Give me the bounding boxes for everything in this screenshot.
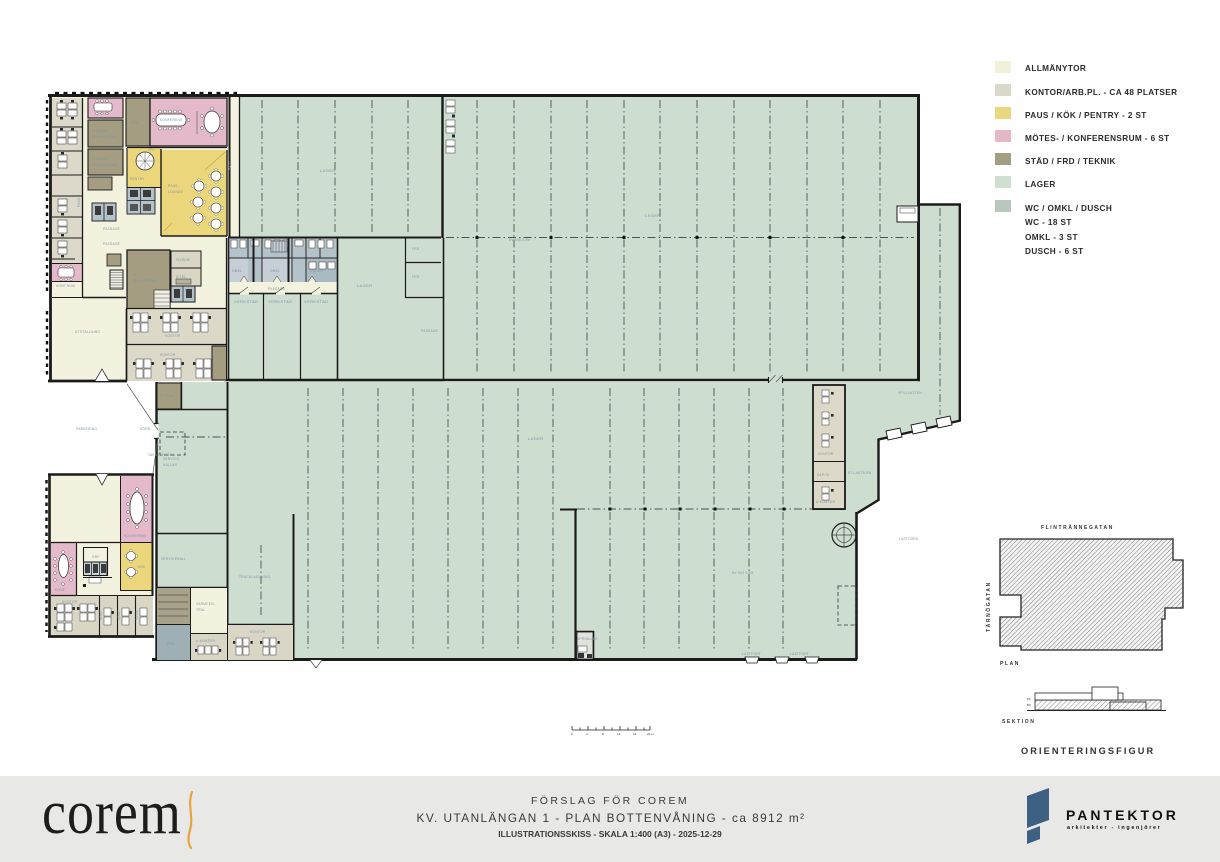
svg-text:LAGER: LAGER xyxy=(528,436,544,441)
svg-text:SERVICE-: SERVICE- xyxy=(163,457,180,461)
svg-text:KÖK: KÖK xyxy=(138,565,146,569)
svg-text:KONTOR: KONTOR xyxy=(250,630,266,634)
svg-text:WC / OMKL / DUSCH: WC / OMKL / DUSCH xyxy=(1025,204,1112,213)
svg-text:KÖRB.: KÖRB. xyxy=(140,427,151,431)
svg-text:KV. UTANLÄNGAN 1 - PLAN BOTT: KV. UTANLÄNGAN 1 - PLAN BOTTENVÅNING - c… xyxy=(417,811,806,825)
svg-text:FRD: FRD xyxy=(412,275,420,279)
svg-text:SEKTION: SEKTION xyxy=(1002,719,1035,725)
svg-text:PARKERING: PARKERING xyxy=(76,427,97,431)
svg-text:arkitekter - ingenjörer: arkitekter - ingenjörer xyxy=(1067,825,1162,831)
svg-text:4: 4 xyxy=(586,732,588,736)
svg-text:BV: BV xyxy=(1027,703,1031,707)
svg-text:VERKSTAD: VERKSTAD xyxy=(268,299,292,304)
svg-text:corem: corem xyxy=(42,778,182,847)
svg-text:PASSAGE: PASSAGE xyxy=(421,329,438,333)
svg-text:A-KONTOR: A-KONTOR xyxy=(816,500,836,504)
svg-text:P2: P2 xyxy=(1027,697,1031,701)
svg-text:FPL: FPL xyxy=(148,148,155,152)
svg-text:VERKSTAD: VERKSTAD xyxy=(304,299,328,304)
svg-text:KONTOR: KONTOR xyxy=(818,452,834,456)
svg-text:SERVICEHALL: SERVICEHALL xyxy=(161,557,186,561)
svg-text:KONTOR: KONTOR xyxy=(62,600,78,604)
svg-text:ST RUM: ST RUM xyxy=(160,394,174,398)
svg-text:TRAL: TRAL xyxy=(196,608,205,612)
svg-text:HALLAR: HALLAR xyxy=(163,463,178,467)
svg-text:LASTPORT: LASTPORT xyxy=(790,652,809,656)
svg-text:ILLUSTRATIONSSKISS - SKALA 1:4: ILLUSTRATIONSSKISS - SKALA 1:400 (A3) - … xyxy=(498,829,722,839)
svg-text:PLAN: PLAN xyxy=(1000,661,1020,667)
svg-text:TÄRNÖGATAN: TÄRNÖGATAN xyxy=(985,581,992,632)
svg-text:TRUCKLADDNING: TRUCKLADDNING xyxy=(239,575,271,579)
svg-text:ST:LASTB.RB: ST:LASTB.RB xyxy=(848,471,871,475)
svg-text:16: 16 xyxy=(633,732,637,736)
svg-text:CENTRALRUM: CENTRALRUM xyxy=(92,135,117,139)
svg-text:OMKL: OMKL xyxy=(270,269,280,273)
svg-text:LASTGÅRD: LASTGÅRD xyxy=(899,536,919,541)
svg-text:OMKL: OMKL xyxy=(232,269,242,273)
svg-text:PASS.: PASS. xyxy=(228,159,232,170)
svg-text:FRD: FRD xyxy=(412,247,420,251)
svg-text:LAGER: LAGER xyxy=(645,213,661,218)
svg-text:TAKUTSPRÅNG: TAKUTSPRÅNG xyxy=(148,452,175,457)
svg-text:FÖRSLAG FÖR COREM: FÖRSLAG FÖR COREM xyxy=(531,795,689,807)
svg-text:S:: S: xyxy=(134,273,138,277)
svg-text:A-KONTOR: A-KONTOR xyxy=(196,639,216,643)
svg-text:PASSAGE: PASSAGE xyxy=(268,287,285,291)
svg-text:FRD: FRD xyxy=(131,121,139,125)
svg-text:PAUS / KÖK / PENTRY - 2 ST: PAUS / KÖK / PENTRY - 2 ST xyxy=(1025,110,1147,120)
svg-text:LAGER: LAGER xyxy=(1025,180,1056,189)
svg-text:VARMCEN-: VARMCEN- xyxy=(196,602,215,606)
svg-text:LAGER: LAGER xyxy=(357,283,373,288)
svg-text:SPOL: SPOL xyxy=(166,642,176,646)
svg-text:PASSAGE: PASSAGE xyxy=(103,227,120,231)
svg-text:GRP: GRP xyxy=(92,555,100,559)
svg-text:PASSAGE: PASSAGE xyxy=(103,242,120,246)
svg-text:S:TEL: S:TEL xyxy=(176,275,186,279)
svg-text:ALLMÄNYTOR: ALLMÄNYTOR xyxy=(1025,63,1086,73)
svg-text:CENTRALRUM: CENTRALRUM xyxy=(92,163,117,167)
svg-text:ORIENTERINGSFIGUR: ORIENTERINGSFIGUR xyxy=(1021,746,1155,756)
svg-text:KAP.TA: KAP.TA xyxy=(817,473,830,477)
svg-text:F:SKADE: F:SKADE xyxy=(92,129,108,133)
svg-text:8: 8 xyxy=(602,732,604,736)
svg-text:KONT.RUM: KONT.RUM xyxy=(56,284,75,288)
svg-text:KONTOR/ARB.PL. - CA 48 PLATSER: KONTOR/ARB.PL. - CA 48 PLATSER xyxy=(1025,88,1177,97)
svg-text:KONF.: KONF. xyxy=(55,588,66,592)
svg-text:KONT.: KONT. xyxy=(117,609,121,620)
svg-text:PAUS-: PAUS- xyxy=(168,184,179,188)
svg-text:KONT.: KONT. xyxy=(99,609,103,620)
svg-text:LASTPORT: LASTPORT xyxy=(742,652,761,656)
svg-text:BV 848 KVM: BV 848 KVM xyxy=(509,238,530,242)
svg-text:PANTEKTOR: PANTEKTOR xyxy=(1066,807,1179,823)
svg-text:STÄD / FRD / TEKNIK: STÄD / FRD / TEKNIK xyxy=(1025,156,1116,166)
svg-text:VILRUM: VILRUM xyxy=(176,258,190,262)
svg-text:KONTOR: KONTOR xyxy=(165,334,181,338)
svg-text:UTSTÄLLNING: UTSTÄLLNING xyxy=(75,330,100,334)
svg-text:LOUNGE: LOUNGE xyxy=(168,190,183,194)
svg-text:PENTRY: PENTRY xyxy=(130,177,145,181)
svg-text:SPILLVATTEN: SPILLVATTEN xyxy=(898,391,922,395)
svg-text:12: 12 xyxy=(617,732,621,736)
svg-text:BV 904 KVM: BV 904 KVM xyxy=(732,571,753,575)
svg-text:20 m: 20 m xyxy=(647,732,654,736)
svg-text:0: 0 xyxy=(571,732,573,736)
svg-text:DUSCH - 6 ST: DUSCH - 6 ST xyxy=(1025,247,1083,256)
svg-text:F:SKADE: F:SKADE xyxy=(92,157,108,161)
svg-text:VERKSTAD: VERKSTAD xyxy=(234,299,258,304)
svg-text:FLINTRÄNNEGATAN: FLINTRÄNNEGATAN xyxy=(1041,524,1114,531)
svg-text:PASS.: PASS. xyxy=(77,196,81,207)
svg-text:KONFERENS: KONFERENS xyxy=(160,118,183,122)
svg-text:E:LEVERANS: E:LEVERANS xyxy=(134,279,157,283)
svg-text:KONFERENS: KONFERENS xyxy=(124,534,147,538)
svg-text:WC - 18 ST: WC - 18 ST xyxy=(1025,218,1072,227)
svg-text:KONTOR: KONTOR xyxy=(160,353,176,357)
svg-text:DUSCH: DUSCH xyxy=(310,269,323,273)
svg-text:PASS.: PASS. xyxy=(135,609,139,620)
svg-text:SPRINKLER: SPRINKLER xyxy=(577,637,598,641)
svg-text:LAGER: LAGER xyxy=(320,168,336,173)
svg-text:MÖTES- / KONFERENSRUM - 6 ST: MÖTES- / KONFERENSRUM - 6 ST xyxy=(1025,133,1169,143)
svg-text:OMKL - 3 ST: OMKL - 3 ST xyxy=(1025,233,1078,242)
